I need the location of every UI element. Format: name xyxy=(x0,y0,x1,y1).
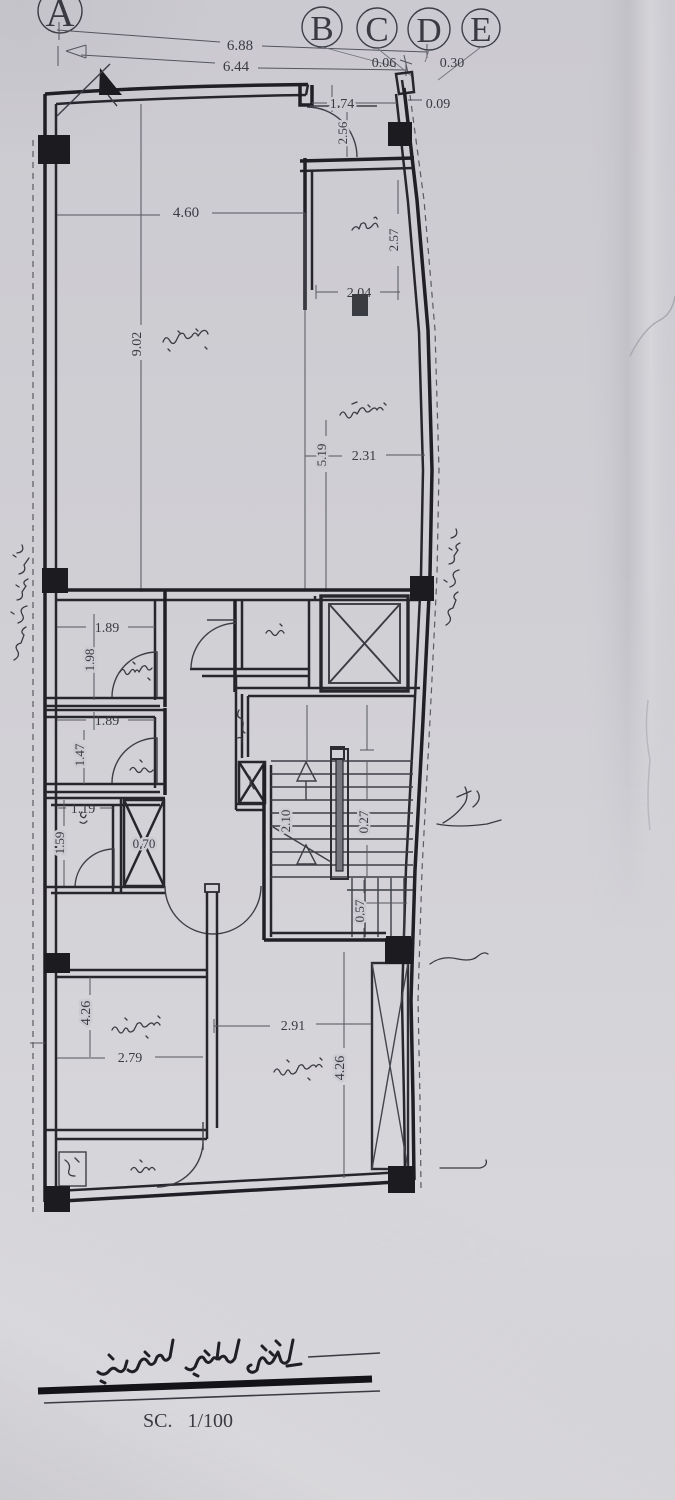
svg-text:5.19: 5.19 xyxy=(314,444,329,467)
svg-text:1.59: 1.59 xyxy=(52,832,67,855)
svg-text:1.19: 1.19 xyxy=(71,802,96,817)
svg-text:6.88: 6.88 xyxy=(227,38,253,54)
svg-text:2.57: 2.57 xyxy=(386,228,401,251)
svg-text:B: B xyxy=(310,9,333,48)
svg-text:SC. 1/100: SC. 1/100 xyxy=(143,1410,233,1432)
svg-text:0.70: 0.70 xyxy=(133,836,156,851)
svg-text:C: C xyxy=(365,10,388,49)
svg-text:2.10: 2.10 xyxy=(278,810,293,833)
svg-text:0.27: 0.27 xyxy=(356,810,371,833)
svg-text:E: E xyxy=(470,10,491,49)
svg-text:2.79: 2.79 xyxy=(118,1051,143,1066)
svg-text:4.26: 4.26 xyxy=(333,1056,348,1081)
svg-text:0.06: 0.06 xyxy=(372,56,397,71)
svg-text:0.30: 0.30 xyxy=(440,56,465,71)
svg-text:1.74: 1.74 xyxy=(330,97,355,112)
svg-text:6.44: 6.44 xyxy=(223,59,250,75)
svg-text:2.31: 2.31 xyxy=(352,449,377,464)
svg-text:1.89: 1.89 xyxy=(95,621,120,636)
svg-text:4.26: 4.26 xyxy=(79,1001,94,1026)
svg-text:1.47: 1.47 xyxy=(72,743,87,766)
svg-text:2.91: 2.91 xyxy=(281,1019,306,1034)
svg-text:D: D xyxy=(416,11,441,50)
svg-text:4.60: 4.60 xyxy=(173,205,199,221)
svg-text:9.02: 9.02 xyxy=(130,332,145,357)
svg-text:0.09: 0.09 xyxy=(426,97,451,112)
svg-text:1.89: 1.89 xyxy=(95,714,120,729)
svg-text:2.56: 2.56 xyxy=(335,121,350,144)
svg-text:0.57: 0.57 xyxy=(352,899,367,922)
svg-text:1.98: 1.98 xyxy=(82,649,97,672)
